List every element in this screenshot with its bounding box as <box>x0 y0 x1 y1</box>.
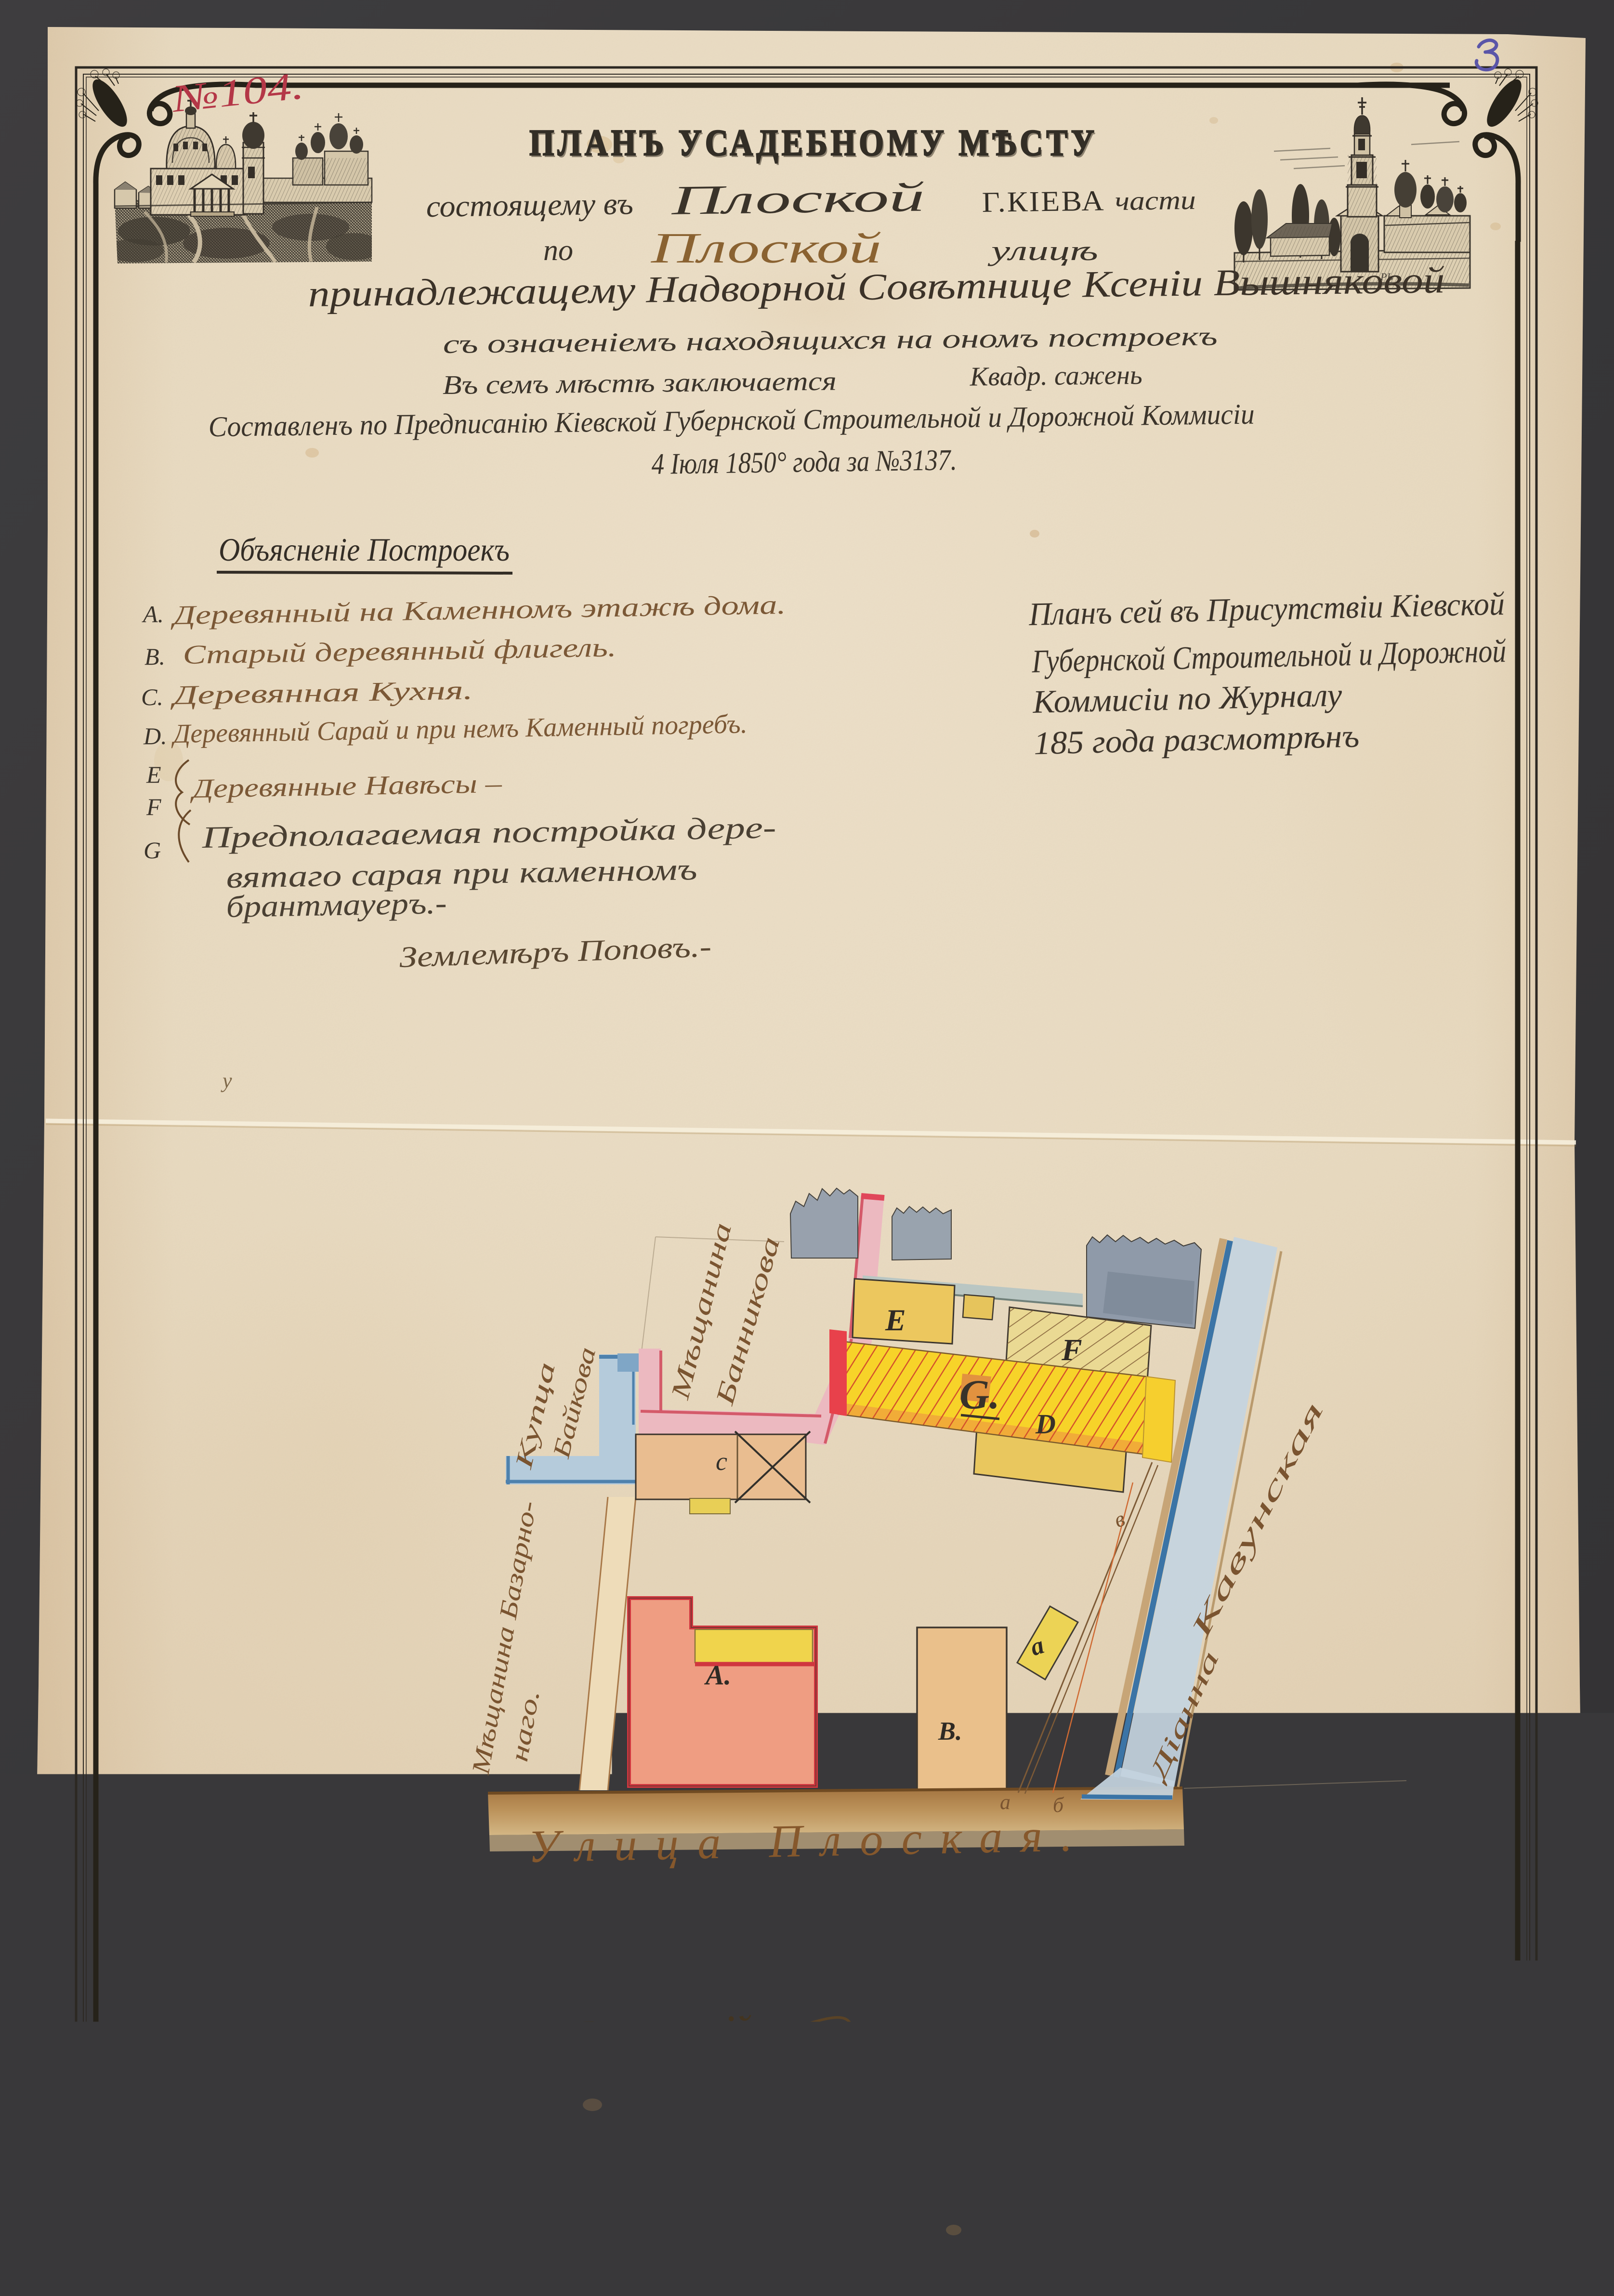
svg-text:Плоской: Плоской <box>670 174 925 223</box>
svg-text:В.: В. <box>144 643 165 670</box>
svg-text:4: 4 <box>1096 2120 1103 2136</box>
svg-text:Е: Е <box>146 761 161 788</box>
svg-text:2: 2 <box>1039 2121 1046 2137</box>
svg-text:5: 5 <box>1125 2120 1132 2136</box>
svg-text:Деревянные Навѣсы –: Деревянные Навѣсы – <box>189 769 502 804</box>
svg-text:15.Саженъ.: 15.Саженъ. <box>1400 2125 1473 2141</box>
svg-text:D.: D. <box>143 722 167 749</box>
svg-text:МАШТАБЪ.: МАШТАБЪ. <box>1154 2118 1255 2138</box>
svg-text:Плоской: Плоской <box>651 224 881 272</box>
svg-text:185 года разсмотрѣнъ: 185 года разсмотрѣнъ <box>1033 718 1360 761</box>
svg-text:G: G <box>144 837 161 864</box>
svg-text:С.: С. <box>141 683 163 710</box>
svg-text:по: по <box>543 234 573 267</box>
svg-text:В.: В. <box>938 1717 962 1745</box>
svg-text:Деревянная Кухня.: Деревянная Кухня. <box>170 675 473 710</box>
svg-text:F: F <box>1061 1333 1082 1367</box>
svg-text:F: F <box>146 793 161 820</box>
svg-text:А.: А. <box>142 601 164 628</box>
svg-text:3: 3 <box>1067 2120 1075 2136</box>
svg-text:1: 1 <box>1010 2121 1018 2137</box>
svg-text:Л. Шмигельскій: Л. Шмигельскій <box>514 2009 753 2053</box>
svg-text:улицѣ: улицѣ <box>987 235 1098 266</box>
svg-text:А.: А. <box>704 1659 731 1691</box>
svg-text:Е: Е <box>885 1303 906 1337</box>
svg-text:Г.КІЕВА: Г.КІЕВА <box>982 184 1105 218</box>
svg-text:с: с <box>716 1447 727 1476</box>
svg-text:состоящему въ: состоящему въ <box>426 186 633 223</box>
svg-text:части: части <box>1115 185 1196 216</box>
svg-text:ПЛАНЪ УСАДЕБНОМУ МѢСТУ: ПЛАНЪ УСАДЕБНОМУ МѢСТУ <box>529 122 1098 163</box>
svg-text:D: D <box>1035 1408 1056 1440</box>
svg-text:у: у <box>221 1069 232 1092</box>
svg-text:Объясненіе Построекъ: Объясненіе Построекъ <box>219 531 510 568</box>
svg-text:4 Іюля 1850° года за №3137.: 4 Іюля 1850° года за №3137. <box>651 444 957 481</box>
svg-text:брантмауеръ.-: брантмауеръ.- <box>226 886 447 924</box>
svg-text:Квадр. сажень: Квадр. сажень <box>969 360 1142 392</box>
svg-text:10: 10 <box>1267 2119 1281 2135</box>
svg-text:G.: G. <box>959 1371 1000 1417</box>
svg-text:Въ семъ мѣстѣ заключается: Въ семъ мѣстѣ заключается <box>442 366 837 400</box>
svg-text:Коммисіи по Журналу: Коммисіи по Журналу <box>1032 676 1342 720</box>
